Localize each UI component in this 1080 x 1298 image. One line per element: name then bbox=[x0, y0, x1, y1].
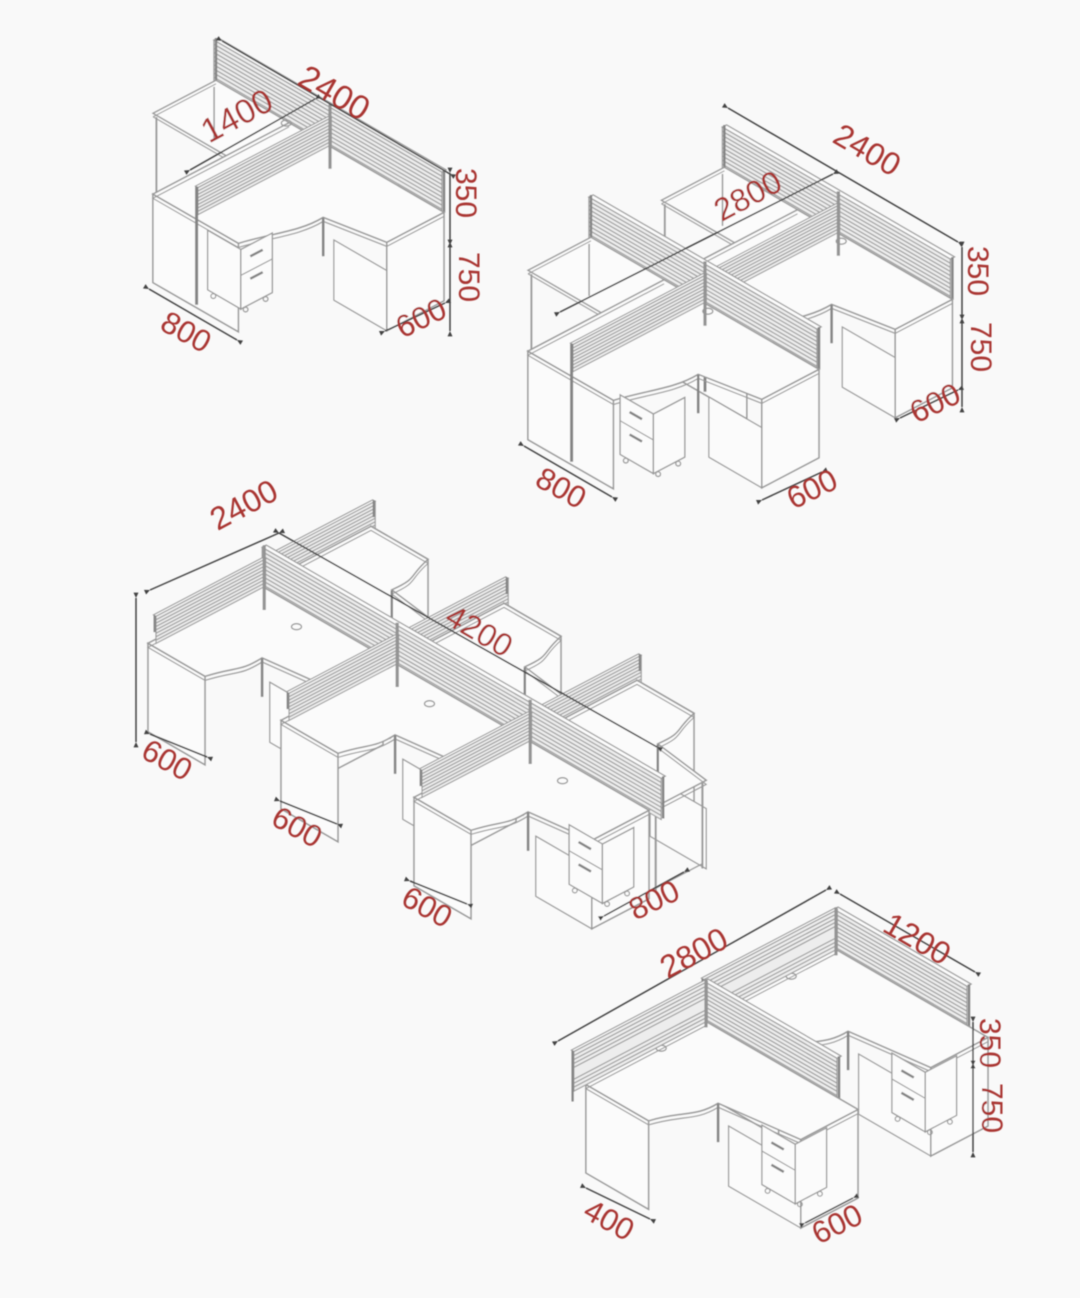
svg-text:750: 750 bbox=[452, 252, 485, 302]
svg-text:750: 750 bbox=[975, 1083, 1008, 1133]
svg-text:400: 400 bbox=[578, 1192, 640, 1248]
svg-text:2400: 2400 bbox=[204, 472, 284, 537]
svg-text:750: 750 bbox=[964, 322, 997, 372]
svg-text:350: 350 bbox=[449, 168, 482, 218]
svg-text:350: 350 bbox=[973, 1018, 1006, 1068]
svg-text:350: 350 bbox=[961, 246, 994, 296]
